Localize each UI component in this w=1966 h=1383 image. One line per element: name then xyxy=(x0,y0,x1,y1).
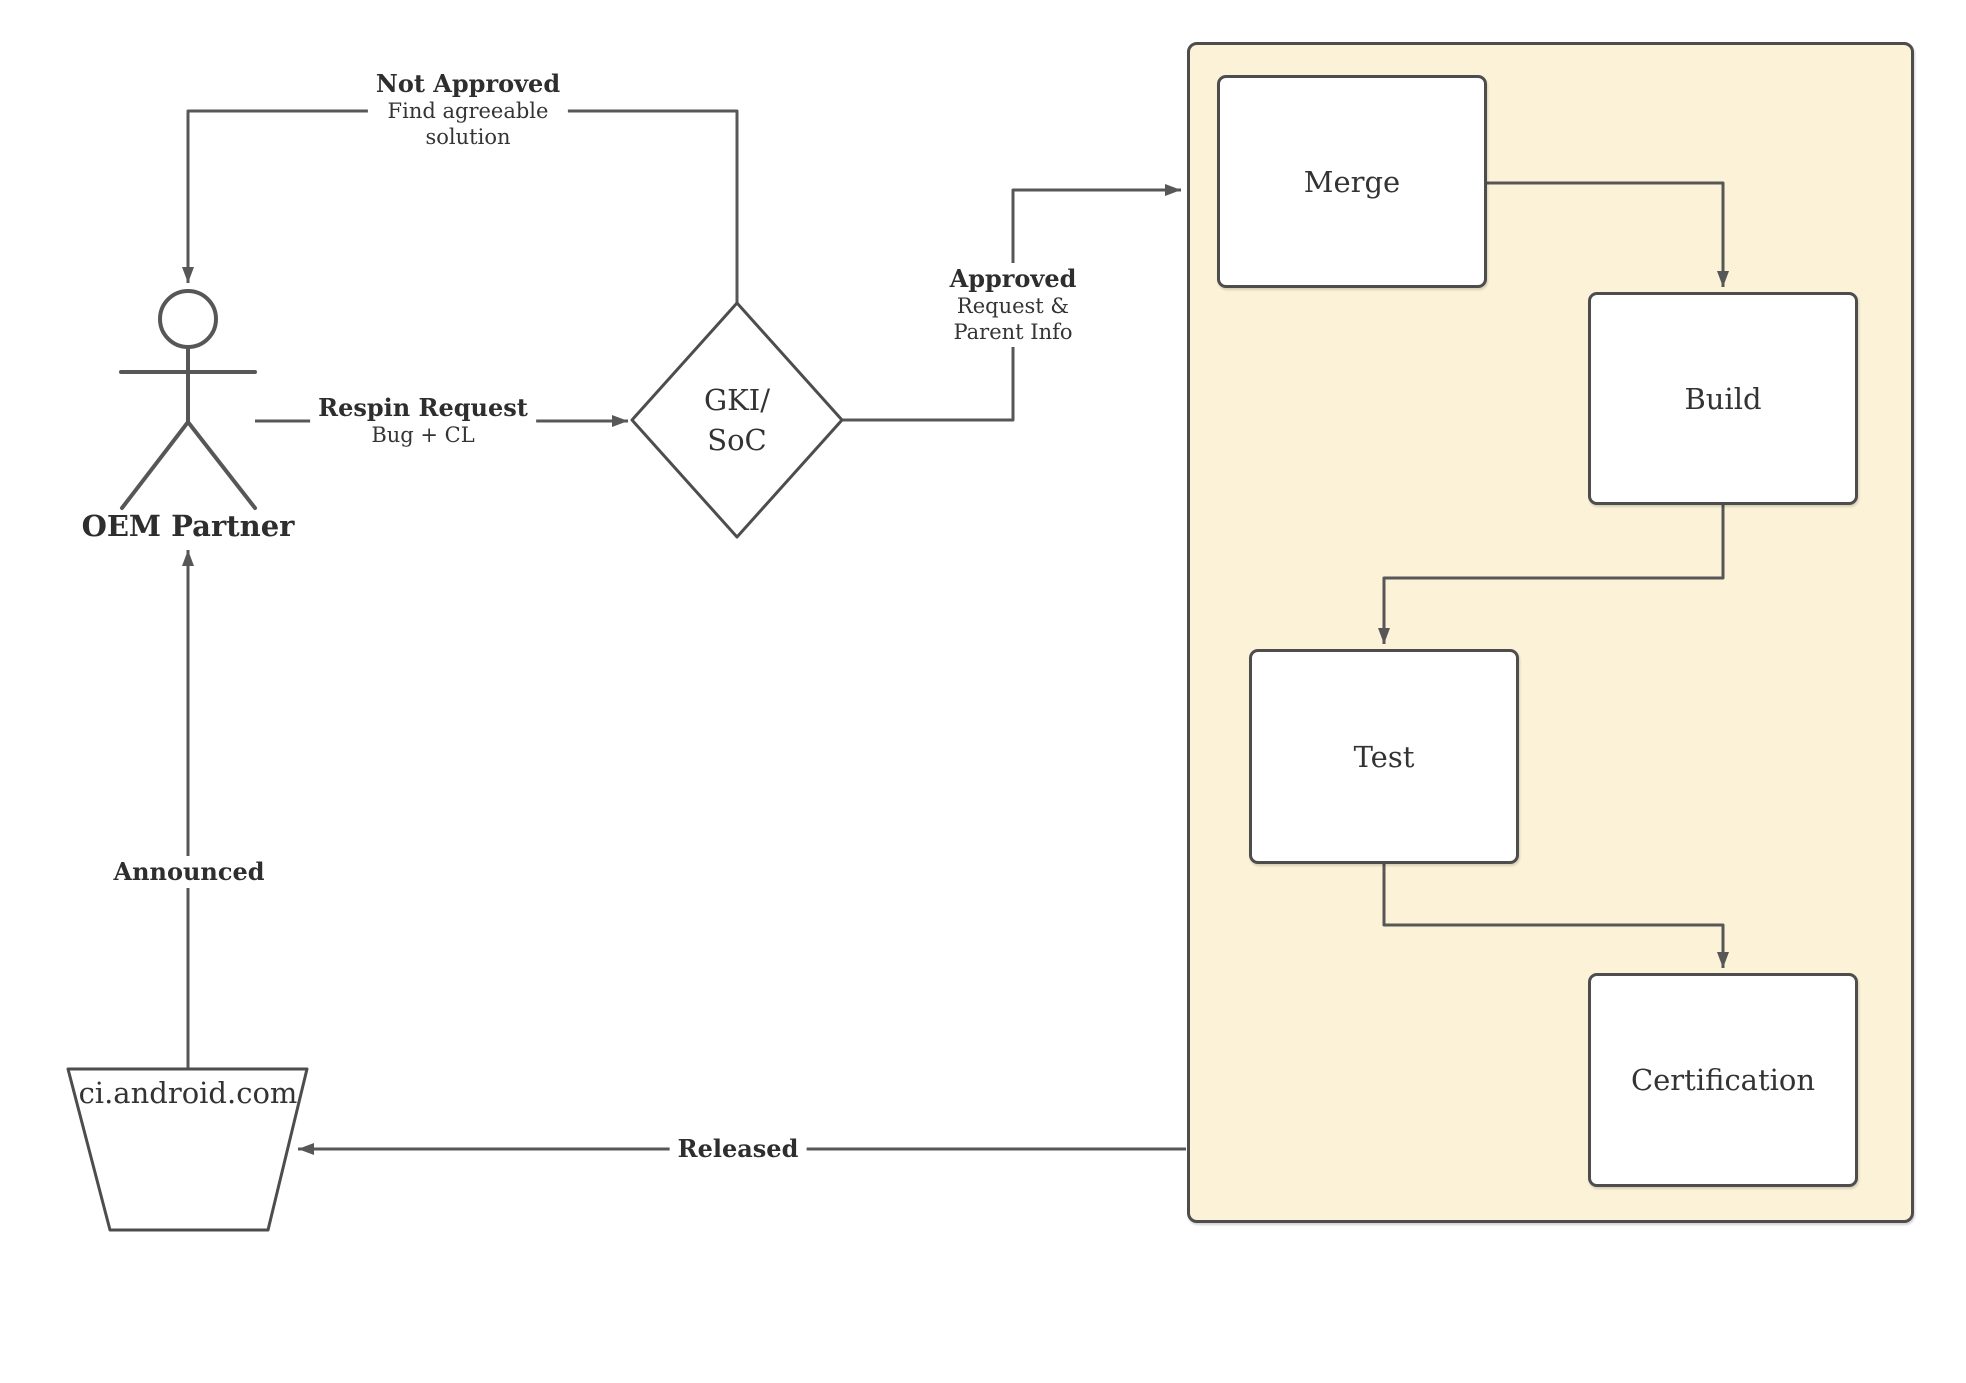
actor-head xyxy=(160,291,216,347)
edge-label-announced: Announced xyxy=(105,856,272,888)
decision-label-line2: SoC xyxy=(704,420,770,460)
edge-label-released: Released xyxy=(670,1133,807,1165)
edge-label-not-approved: Not Approved Find agreeable solution xyxy=(368,68,568,152)
respin-subtitle: Bug + CL xyxy=(337,422,509,448)
node-merge-label: Merge xyxy=(1304,165,1400,199)
ci-label: ci.android.com xyxy=(79,1076,298,1110)
not-approved-subtitle: Find agreeable solution xyxy=(382,98,554,150)
node-certification: Certification xyxy=(1588,973,1858,1187)
node-certification-label: Certification xyxy=(1631,1063,1815,1097)
released-title: Released xyxy=(678,1135,799,1163)
announced-title: Announced xyxy=(113,858,264,886)
respin-title: Respin Request xyxy=(318,394,528,422)
actor-figure xyxy=(121,291,255,508)
approved-subtitle: Request & Parent Info xyxy=(927,293,1099,345)
not-approved-title: Not Approved xyxy=(376,70,560,98)
actor-legs xyxy=(122,422,255,508)
decision-label-line1: GKI/ xyxy=(704,380,770,420)
decision-label: GKI/ SoC xyxy=(704,380,770,460)
node-build: Build xyxy=(1588,292,1858,505)
node-build-label: Build xyxy=(1684,382,1761,416)
flow-diagram-canvas: Merge Build Test Certification GKI/ SoC … xyxy=(0,0,1966,1383)
node-test: Test xyxy=(1249,649,1519,864)
edge-label-respin: Respin Request Bug + CL xyxy=(310,392,536,450)
node-merge: Merge xyxy=(1217,75,1487,288)
node-test-label: Test xyxy=(1354,740,1415,774)
actor-label: OEM Partner xyxy=(82,509,295,543)
approved-title: Approved xyxy=(927,265,1099,293)
edge-label-approved: Approved Request & Parent Info xyxy=(919,263,1107,347)
